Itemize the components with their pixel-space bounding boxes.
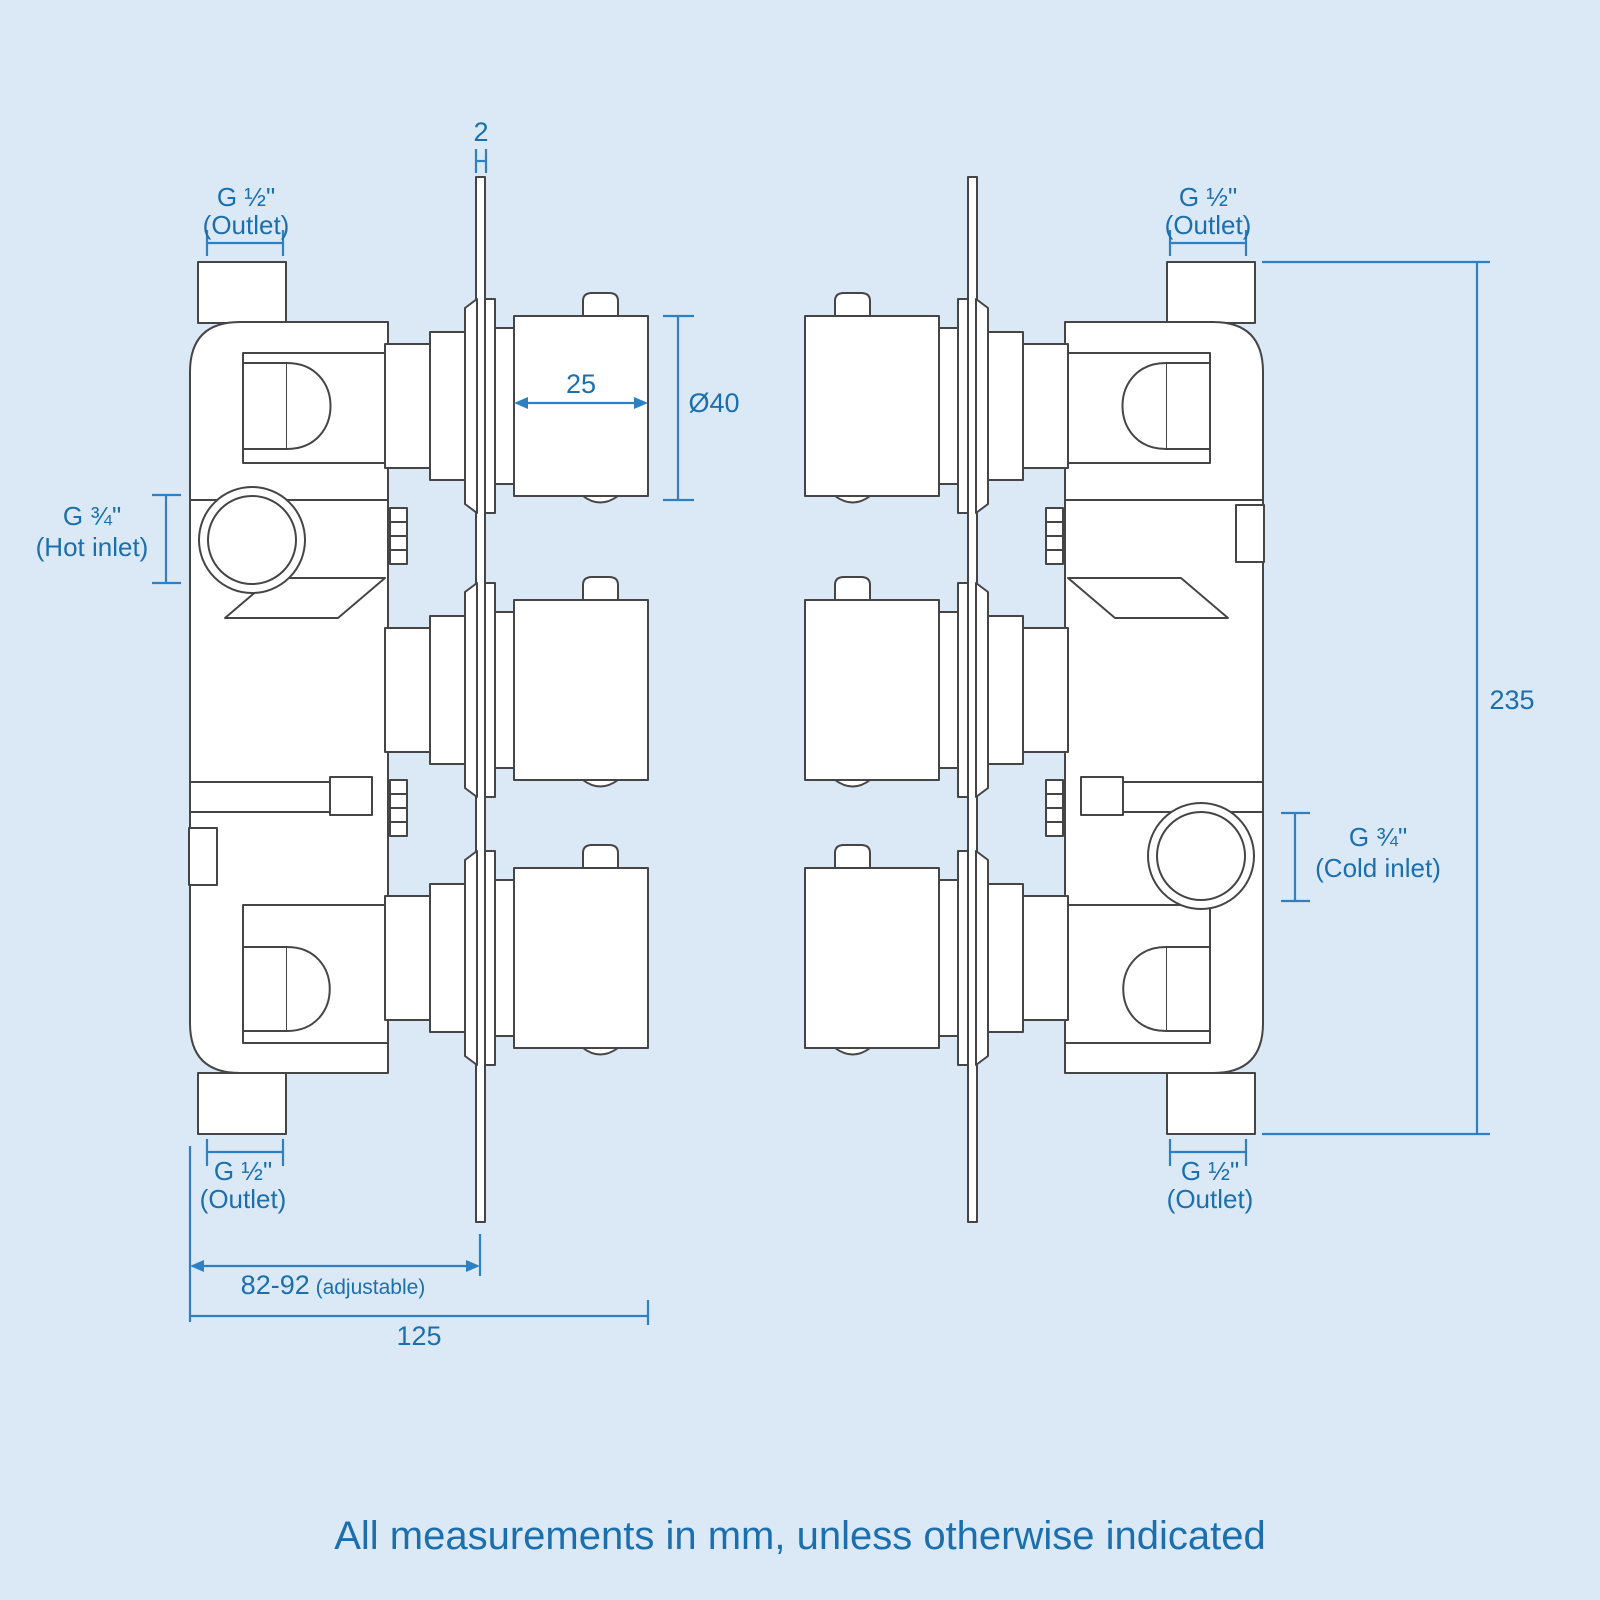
label-left-bottom-outlet: (Outlet) bbox=[200, 1184, 287, 1214]
label-hot-inlet-size: G ¾" bbox=[63, 501, 121, 531]
mounting-lug bbox=[189, 828, 217, 885]
label-right-bottom-outlet-size: G ½" bbox=[1181, 1156, 1239, 1186]
label-handle-width: 25 bbox=[566, 369, 596, 399]
label-plate-thickness: 2 bbox=[473, 117, 488, 147]
label-right-top-outlet: (Outlet) bbox=[1165, 210, 1252, 240]
right-valve-view bbox=[805, 177, 1264, 1222]
label-overall-height: 235 bbox=[1489, 685, 1534, 715]
label-handle-diameter: Ø40 bbox=[688, 388, 739, 418]
measurements-caption: All measurements in mm, unless otherwise… bbox=[334, 1514, 1266, 1558]
dim-hot-inlet bbox=[152, 495, 181, 583]
label-overall-depth: 125 bbox=[396, 1321, 441, 1351]
dim-plate-thickness bbox=[476, 149, 486, 173]
label-left-top-outlet: (Outlet) bbox=[203, 210, 290, 240]
cold-inlet-port-inner bbox=[1157, 812, 1245, 900]
label-left-bottom-outlet-size: G ½" bbox=[214, 1156, 272, 1186]
label-cold-inlet: (Cold inlet) bbox=[1315, 853, 1441, 883]
label-right-top-outlet-size: G ½" bbox=[1179, 182, 1237, 212]
label-hot-inlet: (Hot inlet) bbox=[36, 532, 149, 562]
left-valve-view bbox=[189, 177, 648, 1222]
label-wall-depth: 82-92 (adjustable) bbox=[241, 1270, 426, 1300]
dim-cold-inlet bbox=[1281, 813, 1310, 901]
dim-overall-height bbox=[1262, 262, 1490, 1134]
label-left-top-outlet-size: G ½" bbox=[217, 182, 275, 212]
hot-inlet-port-inner bbox=[208, 496, 296, 584]
valve-technical-drawing: G ½" (Outlet) 2 25 Ø40 G ¾" (Hot inlet) … bbox=[0, 0, 1600, 1600]
label-right-bottom-outlet: (Outlet) bbox=[1167, 1184, 1254, 1214]
mounting-lug bbox=[1236, 505, 1264, 562]
label-cold-inlet-size: G ¾" bbox=[1349, 822, 1407, 852]
